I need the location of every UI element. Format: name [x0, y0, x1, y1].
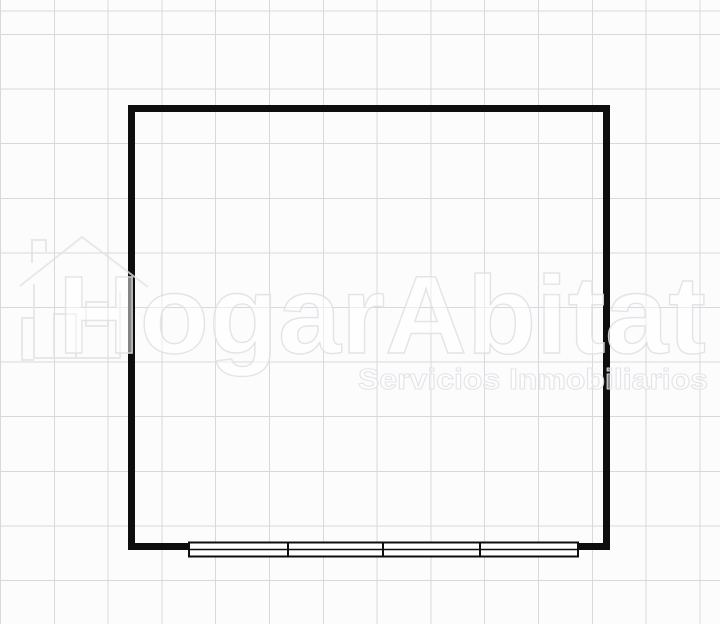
bottom-window: [189, 543, 578, 557]
floor-plan-canvas: HogarAbitat Servicios Inmobiliarios: [0, 0, 720, 624]
floor-plan-drawing: HogarAbitat Servicios Inmobiliarios: [0, 0, 720, 624]
watermark: HogarAbitat Servicios Inmobiliarios: [20, 237, 708, 396]
watermark-tagline-text: Servicios Inmobiliarios: [358, 364, 708, 396]
watermark-brand-text: HogarAbitat: [58, 254, 706, 377]
